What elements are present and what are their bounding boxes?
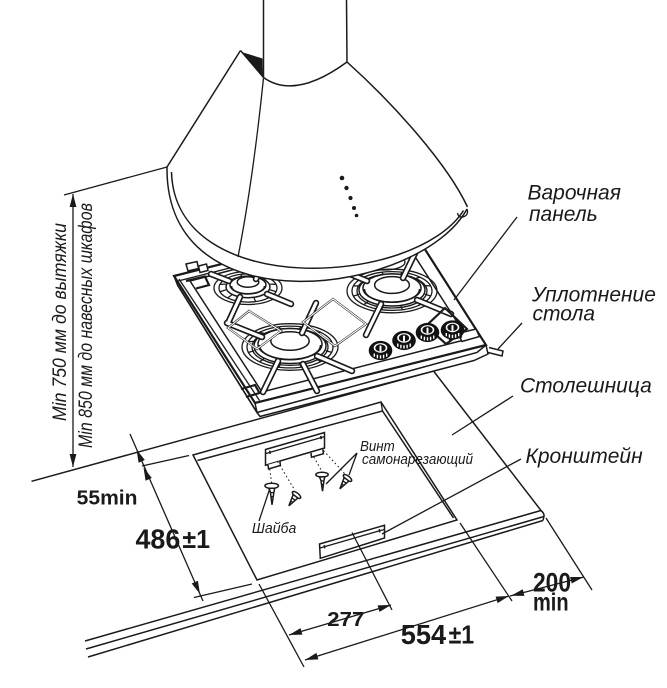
svg-text:панель: панель [529, 203, 598, 226]
svg-text:486: 486 [136, 523, 181, 554]
svg-text:Столешница: Столешница [520, 375, 652, 398]
svg-text:Шайба: Шайба [252, 521, 296, 537]
svg-text:стола: стола [533, 303, 596, 326]
svg-text:Min 850 мм до навесных шкафов: Min 850 мм до навесных шкафов [76, 203, 97, 448]
svg-text:Min 750 мм до вытяжки: Min 750 мм до вытяжки [50, 223, 71, 421]
svg-text:55min: 55min [77, 488, 138, 510]
svg-text:277: 277 [327, 608, 364, 631]
svg-text:min: min [533, 589, 569, 617]
svg-text:±1: ±1 [449, 620, 475, 650]
svg-text:Варочная: Варочная [528, 182, 621, 205]
svg-text:554: 554 [401, 619, 447, 650]
svg-text:самонарезающий: самонарезающий [362, 452, 473, 468]
svg-text:Кронштейн: Кронштейн [526, 445, 644, 468]
svg-text:±1: ±1 [182, 524, 210, 554]
